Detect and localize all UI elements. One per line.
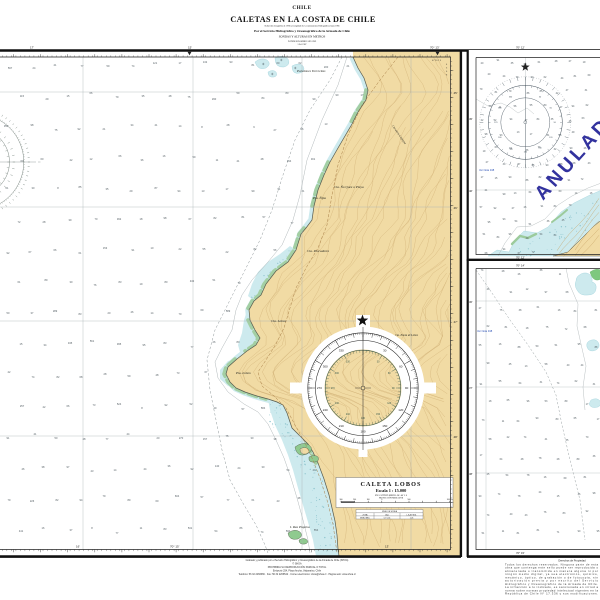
svg-text:Cta. Ño Quez o Playa: Cta. Ño Quez o Playa — [334, 184, 364, 189]
svg-text:150: 150 — [376, 413, 381, 416]
svg-text:DATUM SUDAMERICANO 1969: DATUM SUDAMERICANO 1969 — [288, 40, 316, 43]
svg-text:345: 345 — [68, 341, 73, 345]
svg-text:589: 589 — [226, 309, 231, 313]
svg-text:180: 180 — [361, 417, 366, 420]
svg-text:240: 240 — [323, 408, 328, 412]
svg-text:240: 240 — [335, 402, 340, 405]
svg-text:270: 270 — [331, 387, 336, 390]
svg-text:120: 120 — [398, 408, 403, 412]
svg-text:120: 120 — [387, 402, 392, 405]
svg-text:554: 554 — [314, 528, 319, 532]
svg-text:121: 121 — [153, 61, 158, 65]
svg-text:36ʹ: 36ʹ — [469, 300, 473, 304]
svg-text:330: 330 — [346, 361, 351, 364]
svg-text:EN LATITUD MEDIA 20° 48ʹ 5 S: EN LATITUD MEDIA 20° 48ʹ 5 S — [375, 494, 408, 497]
svg-text:CALETAS EN LA COSTA DE CHILE: CALETAS EN LA COSTA DE CHILE — [230, 15, 375, 24]
svg-text:561: 561 — [90, 339, 95, 343]
svg-text:157: 157 — [203, 437, 208, 441]
svg-text:300: 300 — [335, 372, 340, 375]
svg-text:Escala 1 : 15.000: Escala 1 : 15.000 — [376, 488, 407, 493]
svg-text:45ʹ: 45ʹ — [469, 117, 473, 121]
svg-text:37ʹ: 37ʹ — [469, 386, 473, 390]
svg-text:Pta. Ñipa: Pta. Ñipa — [312, 195, 326, 200]
svg-text:441: 441 — [19, 529, 24, 533]
svg-text:294: 294 — [287, 159, 292, 163]
svg-text:392: 392 — [117, 217, 122, 221]
svg-text:5 Ed. 1987: 5 Ed. 1987 — [298, 44, 307, 46]
svg-text:100: 100 — [367, 499, 370, 501]
svg-text:Reducción fotográfica de 1986: Reducción fotográfica de 1986 y Compilad… — [265, 25, 340, 28]
svg-text:604: 604 — [175, 494, 180, 498]
svg-text:13ʹ: 13ʹ — [385, 545, 389, 549]
svg-text:30: 30 — [383, 348, 387, 352]
svg-text:70° 14ʹ: 70° 14ʹ — [516, 264, 525, 268]
svg-text:524: 524 — [117, 402, 122, 406]
svg-text:500: 500 — [408, 499, 411, 501]
svg-text:300: 300 — [340, 499, 343, 501]
svg-text:48ʹ: 48ʹ — [454, 435, 458, 439]
svg-text:584: 584 — [261, 406, 266, 410]
svg-text:590: 590 — [286, 529, 291, 533]
svg-text:153: 153 — [103, 246, 108, 250]
svg-text:226: 226 — [30, 499, 35, 503]
svg-text:Paralones Torrecitas: Paralones Torrecitas — [296, 69, 326, 73]
svg-text:47 20 1 5: 47 20 1 5 — [432, 60, 442, 62]
svg-text:70° 13ʹ: 70° 13ʹ — [430, 46, 440, 50]
svg-text:257: 257 — [20, 404, 25, 408]
svg-text:200: 200 — [353, 499, 356, 501]
svg-text:270: 270 — [179, 436, 184, 440]
svg-text:1 Ao²: 1 Ao² — [385, 513, 390, 516]
svg-text:70° 15ʹ: 70° 15ʹ — [516, 551, 525, 555]
svg-text:90: 90 — [405, 386, 409, 390]
svg-text:45ʹ: 45ʹ — [454, 91, 458, 95]
svg-text:Teléfono: 56 32 2266666 · Fax:: Teléfono: 56 32 2266666 · Fax: 56 32 226… — [238, 573, 356, 576]
svg-text:16ʹ: 16ʹ — [76, 545, 80, 549]
svg-text:NIVEL DE SONDA: NIVEL DE SONDA — [382, 510, 398, 513]
svg-text:70° 12ʹ: 70° 12ʹ — [516, 256, 525, 260]
svg-text:70° 15ʹ: 70° 15ʹ — [170, 545, 180, 549]
svg-text:38ʹ: 38ʹ — [469, 472, 473, 476]
svg-text:395: 395 — [117, 342, 122, 346]
svg-text:15ʹ: 15ʹ — [188, 46, 192, 50]
svg-text:301: 301 — [311, 157, 316, 161]
svg-text:140: 140 — [215, 464, 220, 468]
svg-text:150: 150 — [382, 424, 387, 428]
svg-text:330: 330 — [339, 348, 344, 352]
svg-text:210: 210 — [339, 424, 344, 428]
svg-text:Por el Servicio Hidrográfico y: Por el Servicio Hidrográfico y Oceanográ… — [254, 29, 350, 33]
svg-text:270: 270 — [317, 386, 322, 390]
svg-text:210: 210 — [346, 413, 351, 416]
svg-text:NIVEL MED.: NIVEL MED. — [360, 517, 371, 519]
svg-text:289: 289 — [53, 309, 58, 313]
svg-text:115: 115 — [20, 94, 25, 98]
svg-text:República de Chile N° 17.336 y: República de Chile N° 17.336 y sus modif… — [505, 592, 598, 596]
svg-text:Cta. Punta de Lobos: Cta. Punta de Lobos — [395, 334, 418, 337]
svg-text:Cta. Lobos: Cta. Lobos — [271, 319, 287, 323]
svg-text:300: 300 — [323, 364, 328, 368]
svg-text:0: 0 — [381, 499, 382, 501]
svg-text:432: 432 — [190, 279, 195, 283]
svg-text:597: 597 — [8, 66, 13, 70]
svg-text:Pta. Lobos: Pta. Lobos — [235, 371, 251, 375]
svg-text:L.S.A.P.S.M.: L.S.A.P.S.M. — [406, 513, 417, 516]
svg-text:46ʹ: 46ʹ — [454, 206, 458, 210]
svg-text:PROYECCIÓN MERCATOR: PROYECCIÓN MERCATOR — [379, 497, 404, 500]
svg-text:60: 60 — [399, 364, 403, 368]
svg-text:46ʹ: 46ʹ — [469, 189, 473, 193]
svg-text:SONDAS Y ALTURAS EN METROS: SONDAS Y ALTURAS EN METROS — [279, 35, 326, 39]
svg-text:Cta. Pescadores: Cta. Pescadores — [307, 249, 330, 253]
svg-text:531: 531 — [188, 526, 193, 530]
svg-text:Ver Nota 348: Ver Nota 348 — [479, 168, 495, 172]
svg-text:0.7 0.56: 0.7 0.56 — [384, 517, 391, 519]
svg-text:1000 m: 1000 m — [447, 499, 453, 501]
svg-text:47ʹ: 47ʹ — [454, 320, 458, 324]
svg-text:1.26: 1.26 — [410, 517, 414, 519]
svg-text:132: 132 — [203, 60, 208, 64]
svg-text:Ver Nota 348: Ver Nota 348 — [477, 329, 493, 333]
svg-text:ZONA: ZONA — [363, 513, 369, 516]
svg-text:70° 12ʹ: 70° 12ʹ — [516, 46, 525, 50]
svg-text:CHILE: CHILE — [292, 5, 311, 11]
svg-text:17ʹ: 17ʹ — [30, 46, 34, 50]
svg-text:290: 290 — [212, 97, 217, 101]
svg-text:I. Rea Piquina: I. Rea Piquina — [289, 525, 310, 529]
